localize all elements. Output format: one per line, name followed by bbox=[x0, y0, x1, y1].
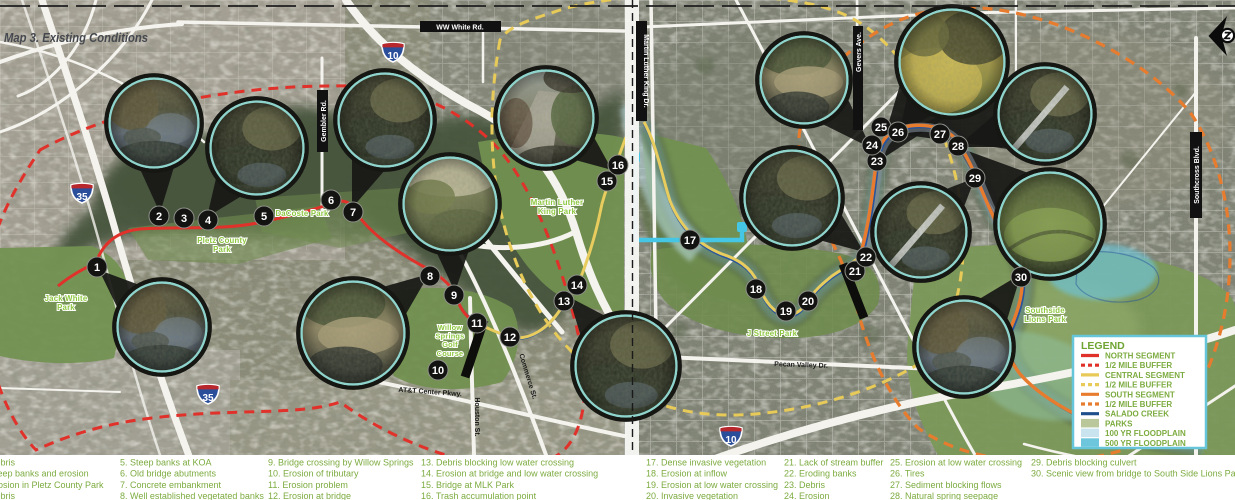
svg-text:21: 21 bbox=[849, 266, 861, 278]
svg-text:28. Natural spring seepage: 28. Natural spring seepage bbox=[890, 491, 998, 500]
svg-text:20. Invasive vegetation: 20. Invasive vegetation bbox=[646, 491, 738, 500]
svg-text:1/2 MILE BUFFER: 1/2 MILE BUFFER bbox=[1105, 361, 1172, 370]
svg-text:20: 20 bbox=[802, 296, 814, 308]
svg-text:29. Debris blocking culvert: 29. Debris blocking culvert bbox=[1031, 458, 1137, 468]
svg-text:14: 14 bbox=[571, 280, 584, 292]
svg-text:SALADO CREEK: SALADO CREEK bbox=[1105, 410, 1169, 419]
svg-text:Park: Park bbox=[57, 303, 75, 312]
svg-text:17. Dense invasive vegetation: 17. Dense invasive vegetation bbox=[646, 458, 766, 468]
svg-text:25: 25 bbox=[875, 122, 887, 134]
svg-text:19: 19 bbox=[780, 306, 792, 318]
svg-text:22: 22 bbox=[860, 252, 872, 264]
svg-text:4. Debris: 4. Debris bbox=[0, 491, 16, 500]
svg-text:21. Lack of stream buffer: 21. Lack of stream buffer bbox=[784, 458, 883, 468]
svg-text:8: 8 bbox=[427, 271, 433, 283]
svg-text:Gevers Ave.: Gevers Ave. bbox=[856, 32, 863, 72]
svg-text:10: 10 bbox=[725, 435, 737, 446]
svg-text:15: 15 bbox=[601, 176, 613, 188]
svg-text:Southcross Blvd.: Southcross Blvd. bbox=[1194, 146, 1201, 204]
svg-text:24. Erosion: 24. Erosion bbox=[784, 491, 830, 500]
svg-text:500 YR FLOODPLAIN: 500 YR FLOODPLAIN bbox=[1105, 439, 1186, 448]
svg-text:Map 3. Existing Conditions: Map 3. Existing Conditions bbox=[4, 30, 148, 45]
svg-text:Southside: Southside bbox=[1025, 306, 1065, 315]
svg-text:2. Steep banks and erosion: 2. Steep banks and erosion bbox=[0, 469, 89, 479]
svg-text:28: 28 bbox=[952, 141, 964, 153]
svg-text:25. Erosion at low water cross: 25. Erosion at low water crossing bbox=[890, 458, 1022, 468]
svg-text:7. Concrete embankment: 7. Concrete embankment bbox=[120, 480, 222, 490]
svg-text:J Street Park: J Street Park bbox=[747, 329, 798, 338]
svg-text:PARKS: PARKS bbox=[1105, 419, 1133, 428]
svg-text:6: 6 bbox=[328, 195, 334, 207]
svg-text:10: 10 bbox=[432, 365, 444, 377]
svg-text:2: 2 bbox=[156, 211, 162, 223]
svg-text:7: 7 bbox=[350, 207, 356, 219]
svg-text:10: 10 bbox=[387, 51, 399, 62]
svg-text:5: 5 bbox=[261, 211, 267, 223]
svg-text:10. Erosion of tributary: 10. Erosion of tributary bbox=[268, 469, 359, 479]
svg-text:27. Sediment blocking flows: 27. Sediment blocking flows bbox=[890, 480, 1002, 490]
svg-text:3. Erosion in Pletz County Par: 3. Erosion in Pletz County Park bbox=[0, 480, 104, 490]
svg-text:1. Debris: 1. Debris bbox=[0, 458, 16, 468]
svg-text:27: 27 bbox=[934, 129, 946, 141]
svg-text:Martin Luther King Dr.: Martin Luther King Dr. bbox=[642, 34, 649, 108]
svg-text:3: 3 bbox=[181, 213, 187, 225]
svg-text:King Park: King Park bbox=[538, 207, 577, 216]
svg-text:DaCoste Park: DaCoste Park bbox=[275, 209, 329, 218]
svg-text:18. Erosion at inflow: 18. Erosion at inflow bbox=[646, 469, 728, 479]
svg-text:30: 30 bbox=[1015, 272, 1027, 284]
svg-text:23. Debris: 23. Debris bbox=[784, 480, 826, 490]
svg-text:9. Bridge crossing by Willow S: 9. Bridge crossing by Willow Springs bbox=[268, 458, 414, 468]
svg-text:35: 35 bbox=[76, 192, 88, 203]
svg-text:1: 1 bbox=[94, 262, 100, 274]
svg-text:16: 16 bbox=[612, 160, 624, 172]
svg-text:35: 35 bbox=[202, 393, 214, 404]
svg-text:5. Steep banks at KOA: 5. Steep banks at KOA bbox=[120, 458, 212, 468]
svg-text:18: 18 bbox=[750, 284, 762, 296]
svg-text:100 YR FLOODPLAIN: 100 YR FLOODPLAIN bbox=[1105, 429, 1186, 438]
svg-text:11. Erosion problem: 11. Erosion problem bbox=[268, 480, 348, 490]
svg-text:1/2 MILE BUFFER: 1/2 MILE BUFFER bbox=[1105, 381, 1172, 390]
svg-text:WW White Rd.: WW White Rd. bbox=[436, 25, 483, 32]
svg-text:Course: Course bbox=[437, 349, 464, 358]
svg-text:24: 24 bbox=[866, 140, 879, 152]
svg-text:13: 13 bbox=[558, 296, 570, 308]
svg-text:26. Tires: 26. Tires bbox=[890, 469, 925, 479]
svg-text:15. Bridge at MLK Park: 15. Bridge at MLK Park bbox=[421, 480, 515, 490]
svg-text:29: 29 bbox=[969, 173, 981, 185]
svg-text:NORTH SEGMENT: NORTH SEGMENT bbox=[1105, 352, 1175, 361]
svg-text:9: 9 bbox=[451, 290, 457, 302]
svg-text:Pletz County: Pletz County bbox=[197, 236, 247, 245]
svg-text:30. Scenic view from bridge to: 30. Scenic view from bridge to South Sid… bbox=[1031, 469, 1235, 479]
svg-text:13. Debris blocking low water: 13. Debris blocking low water crossing bbox=[421, 458, 574, 468]
svg-text:26: 26 bbox=[892, 127, 904, 139]
svg-text:12. Erosion at bridge: 12. Erosion at bridge bbox=[268, 491, 351, 500]
svg-text:Lions Park: Lions Park bbox=[1024, 315, 1066, 324]
svg-text:19. Erosion at low water cross: 19. Erosion at low water crossing bbox=[646, 480, 778, 490]
svg-text:LEGEND: LEGEND bbox=[1081, 340, 1125, 352]
svg-text:22. Eroding banks: 22. Eroding banks bbox=[784, 469, 857, 479]
svg-text:Jack White: Jack White bbox=[45, 294, 88, 303]
svg-text:14. Erosion at bridge and low: 14. Erosion at bridge and low water cros… bbox=[421, 469, 598, 479]
svg-text:CENTRAL SEGMENT: CENTRAL SEGMENT bbox=[1105, 371, 1185, 380]
svg-text:11: 11 bbox=[471, 318, 483, 330]
svg-text:Park: Park bbox=[213, 245, 231, 254]
svg-text:Gembler Rd.: Gembler Rd. bbox=[321, 100, 328, 142]
svg-text:16. Trash accumulation point: 16. Trash accumulation point bbox=[421, 491, 537, 500]
svg-text:23: 23 bbox=[871, 156, 883, 168]
svg-text:4: 4 bbox=[205, 215, 212, 227]
svg-text:Houston St.: Houston St. bbox=[473, 397, 480, 436]
svg-text:17: 17 bbox=[684, 235, 696, 247]
svg-text:12: 12 bbox=[504, 332, 516, 344]
svg-text:1/2 MILE BUFFER: 1/2 MILE BUFFER bbox=[1105, 400, 1172, 409]
svg-text:SOUTH SEGMENT: SOUTH SEGMENT bbox=[1105, 390, 1175, 399]
svg-text:8. Well established vegetated: 8. Well established vegetated banks bbox=[120, 491, 264, 500]
svg-text:6. Old bridge abutments: 6. Old bridge abutments bbox=[120, 469, 217, 479]
svg-text:Martin Luther: Martin Luther bbox=[531, 198, 583, 207]
